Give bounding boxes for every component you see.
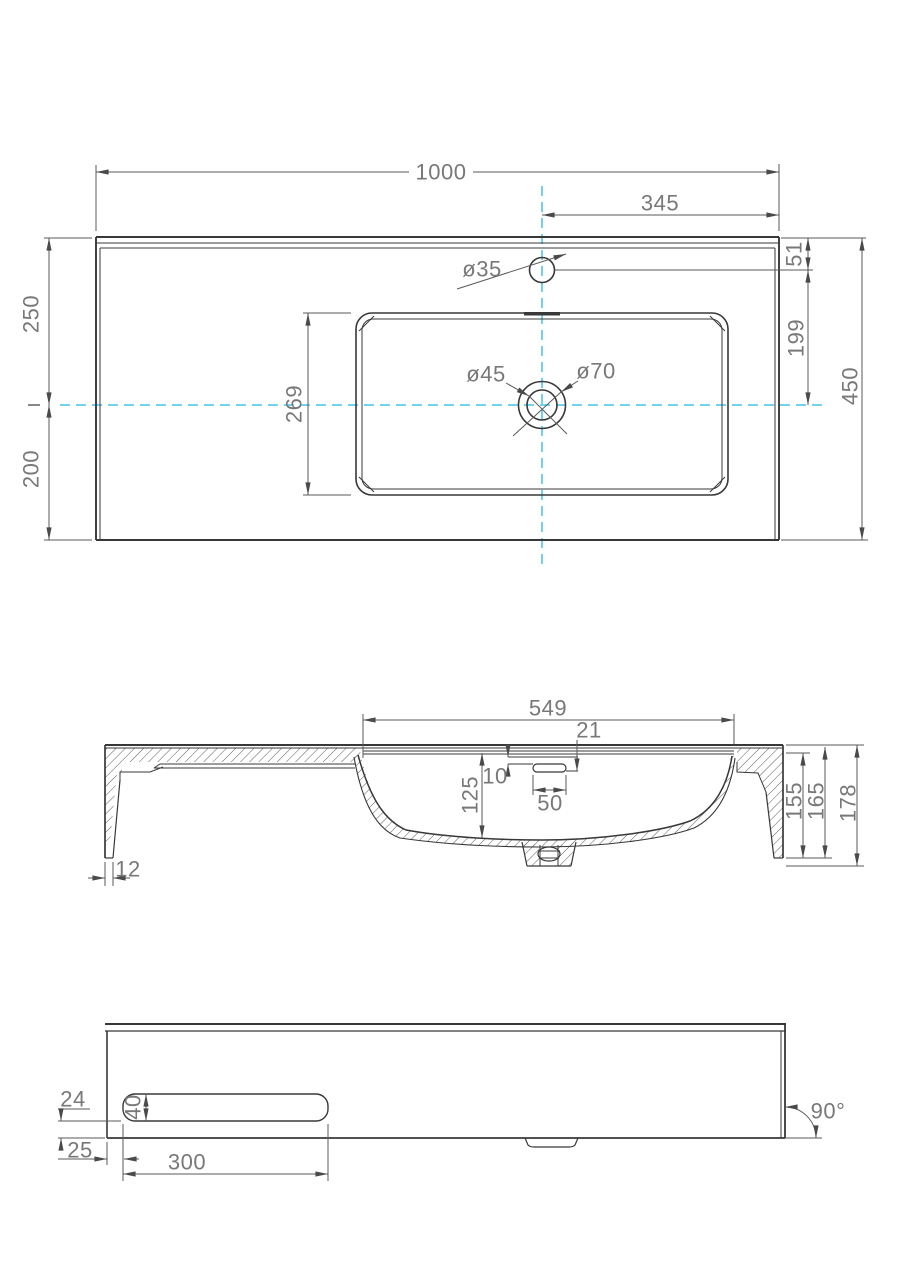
dim-bowl-depth: 125 (458, 776, 483, 814)
technical-drawing: 1000 345 51 199 450 250 200 269 ø35 ø45 … (0, 0, 900, 1273)
section-outline (105, 745, 783, 866)
dim-back-half-depth: 200 (19, 450, 44, 488)
dim-slot-width: 300 (168, 1150, 206, 1175)
dim-slot-to-bottom: 24 (60, 1087, 85, 1112)
dim-faucet-hole-dia: ø35 (462, 257, 501, 282)
dim-drain-outer-dia: ø70 (576, 359, 615, 384)
slab-cut-right (737, 748, 783, 858)
dim-slot-height: 40 (121, 1094, 146, 1119)
dim-overall-width: 1000 (416, 160, 467, 185)
top-view-dimensions (44, 164, 868, 540)
dim-rim-recess: 10 (482, 764, 507, 789)
dim-overall-height: 178 (836, 784, 861, 822)
dim-edge-to-slot: 25 (67, 1138, 92, 1163)
top-view: 1000 345 51 199 450 250 200 269 ø35 ø45 … (19, 160, 869, 568)
front-view: 24 40 25 300 90° (58, 1024, 845, 1181)
dim-front-half-depth: 250 (19, 295, 44, 333)
dim-drain-inner-dia: ø45 (466, 362, 505, 387)
dim-edge-to-faucet: 51 (782, 241, 807, 266)
dim-basin-top-width: 549 (529, 696, 567, 721)
dim-overflow-width: 50 (537, 791, 562, 816)
dim-basin-inner-depth: 269 (282, 385, 307, 423)
dim-center-to-right: 345 (641, 191, 679, 216)
front-outline (105, 1024, 786, 1147)
drain-fitting (538, 847, 560, 861)
dim-overflow-offset: 21 (576, 718, 601, 743)
dim-faucet-to-centerline: 199 (784, 319, 809, 357)
drain-notch (525, 1138, 578, 1147)
dim-side-height: 165 (804, 782, 829, 820)
slab-cut-left (105, 748, 357, 843)
section-view: 549 21 10 50 125 155 165 178 12 (88, 696, 864, 887)
drain-hole (506, 381, 578, 436)
dim-wall-thickness: 12 (115, 857, 140, 882)
overflow-slot-section (533, 764, 566, 772)
overflow-slot-top (524, 312, 560, 316)
towel-slot (123, 1094, 328, 1121)
dim-overall-depth: 450 (838, 367, 863, 405)
dim-corner-angle: 90° (811, 1099, 846, 1124)
